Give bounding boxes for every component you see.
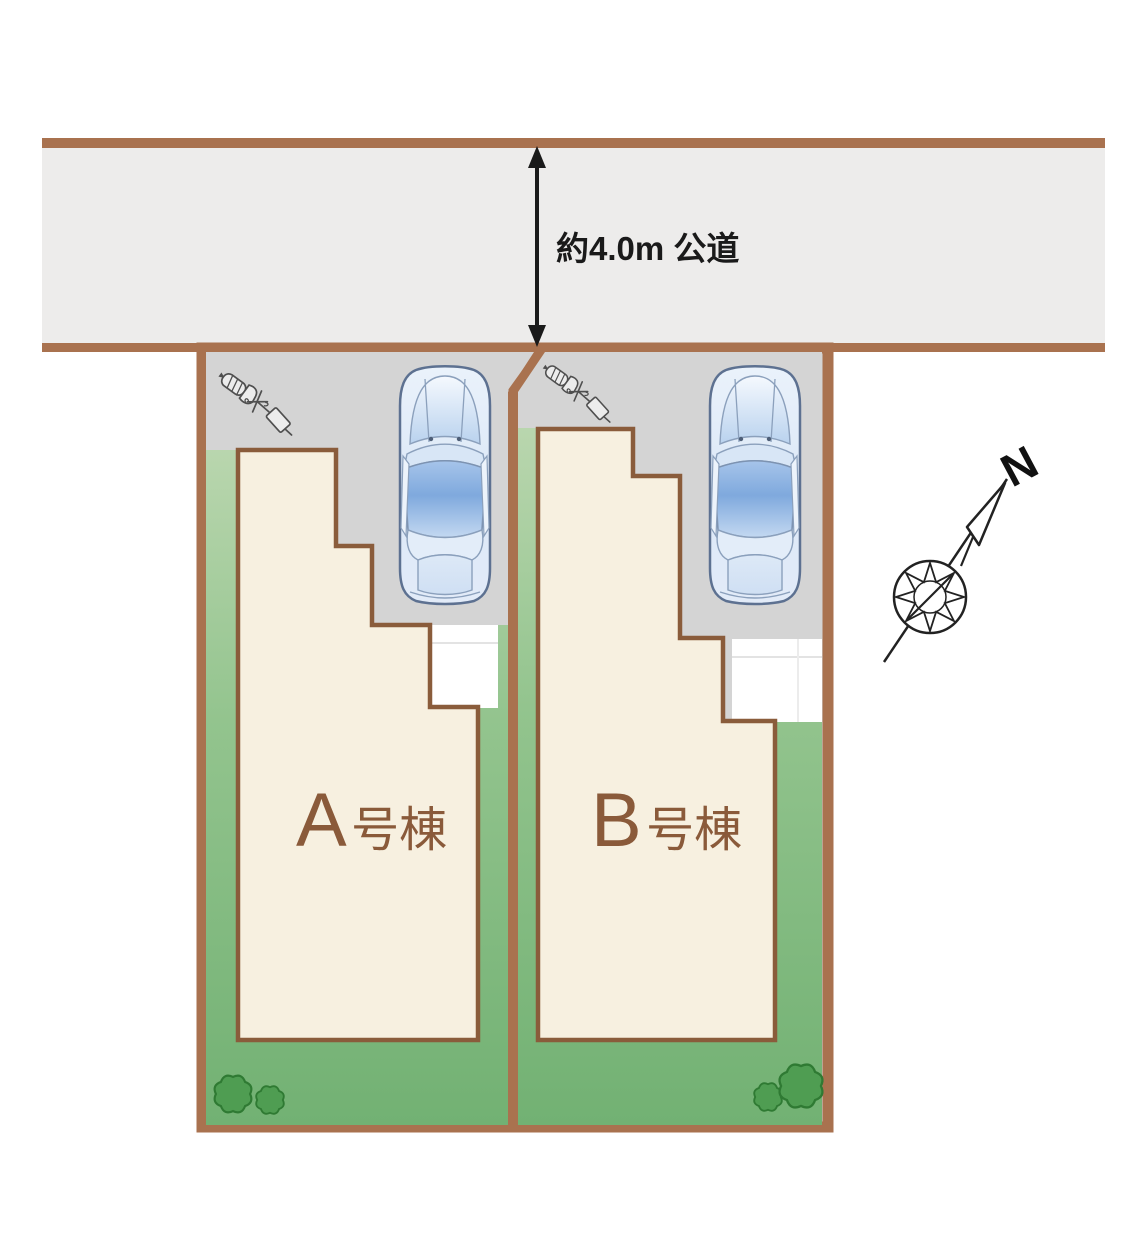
car-icon — [710, 366, 800, 604]
road-top-border — [42, 138, 1105, 148]
building-a-label-letter: A — [296, 778, 347, 863]
site-plan-drawing: A 号棟 B 号棟 約4.0m 公道 — [0, 0, 1144, 1258]
lot-b: B 号棟 — [514, 348, 828, 1127]
lot-a-porch — [431, 625, 498, 708]
site-plan-canvas: A 号棟 B 号棟 約4.0m 公道 — [0, 0, 1144, 1258]
bush-icon — [256, 1086, 284, 1114]
bush-icon — [754, 1083, 782, 1111]
lot-a: A 号棟 — [202, 348, 534, 1127]
car-icon — [400, 366, 490, 604]
building-b-label-letter: B — [591, 778, 642, 863]
road-width-label: 約4.0m 公道 — [556, 230, 739, 267]
compass-flag — [967, 483, 1005, 545]
building-a-label-suffix: 号棟 — [351, 804, 447, 857]
building-b-label-suffix: 号棟 — [646, 804, 742, 857]
compass-flag-tail — [961, 537, 973, 566]
compass-rose-icon: N — [884, 435, 1046, 662]
bush-icon — [215, 1076, 252, 1113]
lot-b-porch — [732, 639, 822, 722]
